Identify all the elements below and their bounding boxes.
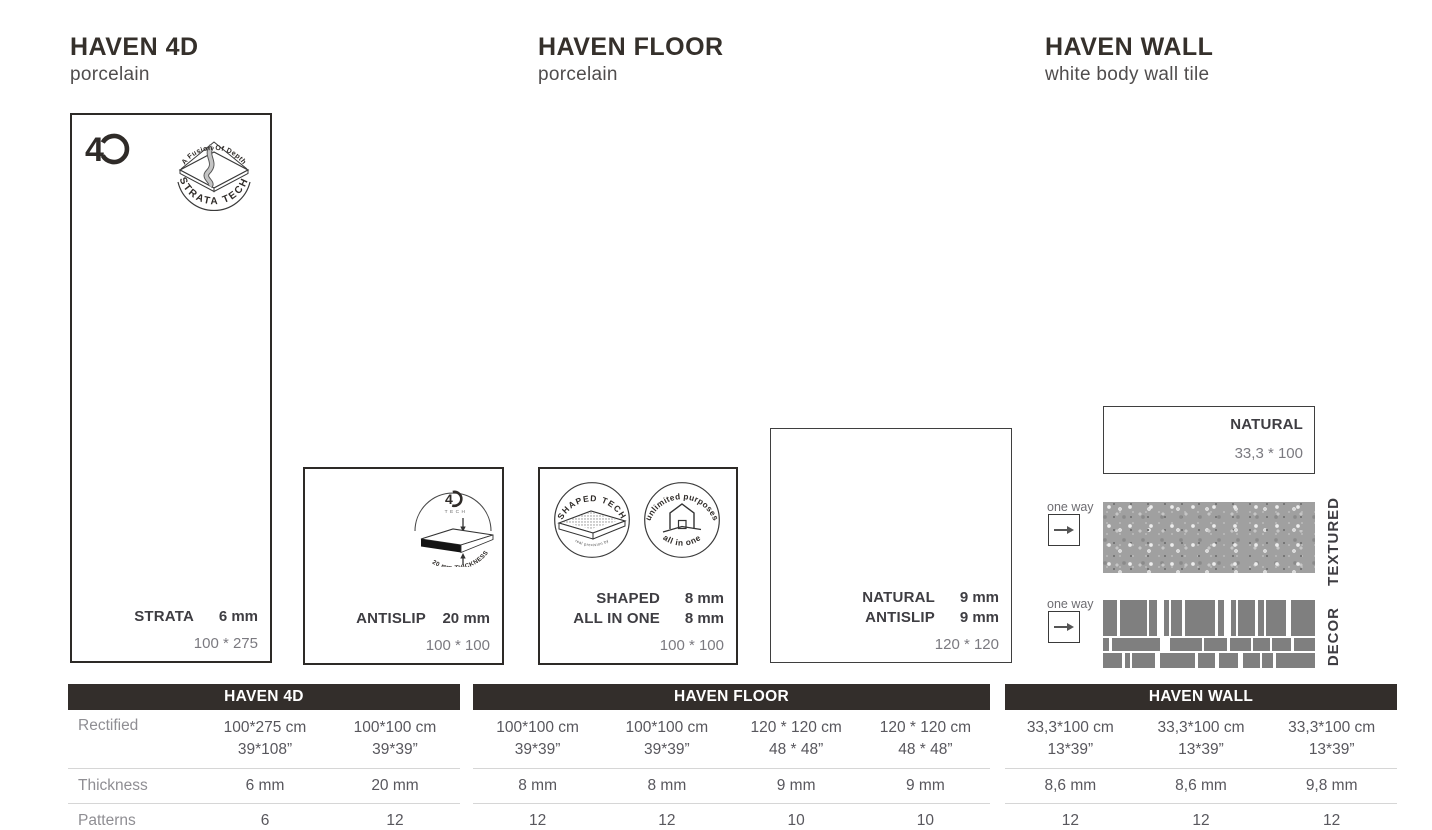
svg-text:4: 4 bbox=[445, 491, 453, 507]
thickness-value: 8 mm bbox=[672, 590, 724, 607]
thickness-value: 20 mm bbox=[438, 610, 490, 627]
finish-label: NATURAL bbox=[1230, 416, 1303, 433]
table-row-thickness: 8 mm8 mm9 mm9 mm bbox=[473, 769, 990, 804]
tile-size: 100 * 100 bbox=[573, 637, 724, 654]
table-cell: 8 mm bbox=[602, 769, 731, 803]
table-cell: 12 bbox=[330, 804, 460, 830]
table-cell: 33,3*100 cm13*39” bbox=[1136, 717, 1267, 768]
svg-text:unlimited purposes: unlimited purposes bbox=[643, 491, 721, 522]
naturalwall-spec: NATURAL 33,3 * 100 bbox=[1230, 416, 1303, 462]
right-arrow-icon bbox=[1054, 622, 1074, 632]
finish-label: STRATA bbox=[134, 608, 194, 625]
haven-4d-subtitle: porcelain bbox=[70, 64, 150, 86]
row-label: Patterns bbox=[68, 804, 200, 830]
decor-band bbox=[1103, 653, 1315, 668]
shaped-spec: SHAPED 8 mm ALL IN ONE 8 mm 100 * 100 bbox=[573, 587, 724, 654]
table-cell: 10 bbox=[732, 804, 861, 830]
table-row-rectified: 100*100 cm39*39”100*100 cm39*39”120 * 12… bbox=[473, 710, 990, 769]
table-row-patterns: 12121010 bbox=[473, 804, 990, 830]
table-row-rectified: 33,3*100 cm13*39”33,3*100 cm13*39”33,3*1… bbox=[1005, 710, 1397, 769]
finish-label: NATURAL bbox=[862, 589, 935, 606]
one-way-box bbox=[1048, 514, 1080, 546]
finish-label: ALL IN ONE bbox=[573, 610, 660, 627]
table-section-haven-4d: HAVEN 4D Rectified100*275 cm39*108”100*1… bbox=[68, 684, 460, 830]
all-in-one-badge-icon: unlimited purposes all in one bbox=[641, 479, 723, 561]
shaped-badge-bottom-text: real precision by bbox=[574, 538, 609, 547]
thickness-value: 8 mm bbox=[672, 610, 724, 627]
allinone-badge-bottom-text: all in one bbox=[661, 532, 702, 548]
table-cell: 12 bbox=[602, 804, 731, 830]
table-header: HAVEN WALL bbox=[1005, 684, 1397, 710]
table-row-thickness: Thickness6 mm20 mm bbox=[68, 769, 460, 804]
table-cell: 9,8 mm bbox=[1266, 769, 1397, 803]
tile-box-natural-wall: NATURAL 33,3 * 100 bbox=[1103, 406, 1315, 474]
decor-vertical-label: DECOR bbox=[1325, 607, 1342, 666]
table-cell: 120 * 120 cm48 * 48” bbox=[861, 717, 990, 768]
table-cell: 33,3*100 cm13*39” bbox=[1005, 717, 1136, 768]
table-cell: 12 bbox=[1266, 804, 1397, 830]
table-cell: 8,6 mm bbox=[1005, 769, 1136, 803]
tile-size: 33,3 * 100 bbox=[1230, 445, 1303, 462]
svg-text:4: 4 bbox=[85, 131, 104, 169]
table-cell: 12 bbox=[1005, 804, 1136, 830]
thickness-value: 9 mm bbox=[947, 589, 999, 606]
table-cell: 12 bbox=[1136, 804, 1267, 830]
decor-band bbox=[1103, 638, 1315, 651]
decor-tile-swatch bbox=[1103, 600, 1315, 668]
table-body: Rectified100*275 cm39*108”100*100 cm39*3… bbox=[68, 710, 460, 830]
table-cell: 9 mm bbox=[732, 769, 861, 803]
decor-band bbox=[1103, 600, 1315, 636]
allinone-badge-top-text: unlimited purposes bbox=[643, 491, 721, 522]
one-way-box bbox=[1048, 611, 1080, 643]
tile-size: 120 * 120 bbox=[862, 636, 999, 653]
svg-text:real precision by: real precision by bbox=[574, 538, 609, 547]
finish-label: ANTISLIP bbox=[356, 610, 426, 627]
table-section-haven-wall: HAVEN WALL 33,3*100 cm13*39”33,3*100 cm1… bbox=[1005, 684, 1397, 830]
table-row-patterns: Patterns612 bbox=[68, 804, 460, 830]
table-row-thickness: 8,6 mm8,6 mm9,8 mm bbox=[1005, 769, 1397, 804]
haven-wall-title: HAVEN WALL bbox=[1045, 33, 1213, 62]
table-cell: 12 bbox=[473, 804, 602, 830]
spec-sheet-page: HAVEN 4D porcelain HAVEN FLOOR porcelain… bbox=[0, 0, 1432, 830]
4d-logo-icon: 4 bbox=[85, 130, 133, 170]
table-header: HAVEN 4D bbox=[68, 684, 460, 710]
table-header: HAVEN FLOOR bbox=[473, 684, 990, 710]
table-cell: 100*100 cm39*39” bbox=[602, 717, 731, 768]
table-cell: 100*100 cm39*39” bbox=[473, 717, 602, 768]
tile-box-natural-120: NATURAL 9 mm ANTISLIP 9 mm 120 * 120 bbox=[770, 428, 1012, 663]
table-cell: 6 mm bbox=[200, 769, 330, 803]
svg-text:all in one: all in one bbox=[661, 532, 702, 548]
table-cell: 20 mm bbox=[330, 769, 460, 803]
table-cell: 100*275 cm39*108” bbox=[200, 717, 330, 768]
one-way-label: one way bbox=[1047, 500, 1094, 514]
haven-wall-subtitle: white body wall tile bbox=[1045, 64, 1209, 86]
svg-text:TECH: TECH bbox=[445, 509, 468, 515]
table-cell: 120 * 120 cm48 * 48” bbox=[732, 717, 861, 768]
table-section-haven-floor: HAVEN FLOOR 100*100 cm39*39”100*100 cm39… bbox=[473, 684, 990, 830]
strata-spec: STRATA 6 mm 100 * 275 bbox=[134, 605, 258, 652]
table-row-rectified: Rectified100*275 cm39*108”100*100 cm39*3… bbox=[68, 710, 460, 769]
table-cell: 6 bbox=[200, 804, 330, 830]
tile-size: 100 * 275 bbox=[134, 635, 258, 652]
table-row-patterns: 121212 bbox=[1005, 804, 1397, 830]
haven-4d-title: HAVEN 4D bbox=[70, 33, 199, 62]
4d-tech-thickness-icon: 4 TECH 20 mm THICKNESS bbox=[407, 481, 499, 567]
table-cell: 10 bbox=[861, 804, 990, 830]
one-way-label: one way bbox=[1047, 597, 1094, 611]
tile-box-shaped: SHAPED TECH real precision by unlimited … bbox=[538, 467, 738, 665]
table-body: 100*100 cm39*39”100*100 cm39*39”120 * 12… bbox=[473, 710, 990, 830]
row-label: Rectified bbox=[68, 717, 200, 768]
table-body: 33,3*100 cm13*39”33,3*100 cm13*39”33,3*1… bbox=[1005, 710, 1397, 830]
strata-tech-badge-icon: A Fusion Of Depth STRATA TECH bbox=[168, 126, 260, 218]
table-cell: 33,3*100 cm13*39” bbox=[1266, 717, 1397, 768]
textured-vertical-label: TEXTURED bbox=[1325, 497, 1342, 586]
table-cell: 100*100 cm39*39” bbox=[330, 717, 460, 768]
natural120-spec: NATURAL 9 mm ANTISLIP 9 mm 120 * 120 bbox=[862, 586, 999, 653]
tile-size: 100 * 100 bbox=[356, 637, 490, 654]
finish-label: SHAPED bbox=[596, 590, 660, 607]
haven-floor-subtitle: porcelain bbox=[538, 64, 618, 86]
table-cell: 8 mm bbox=[473, 769, 602, 803]
thickness-value: 9 mm bbox=[947, 609, 999, 626]
right-arrow-icon bbox=[1054, 525, 1074, 535]
haven-floor-title: HAVEN FLOOR bbox=[538, 33, 724, 62]
thickness-value: 6 mm bbox=[206, 608, 258, 625]
row-label: Thickness bbox=[68, 769, 200, 803]
table-cell: 9 mm bbox=[861, 769, 990, 803]
antislip20-spec: ANTISLIP 20 mm 100 * 100 bbox=[356, 607, 490, 654]
tile-box-strata: 4 A Fusion Of Depth STRATA TECH bbox=[70, 113, 272, 663]
tile-box-antislip-20: 4 TECH 20 mm THICKNESS ANTISLIP 20 mm 10… bbox=[303, 467, 504, 665]
finish-label: ANTISLIP bbox=[865, 609, 935, 626]
table-cell: 8,6 mm bbox=[1136, 769, 1267, 803]
shaped-tech-badge-icon: SHAPED TECH real precision by bbox=[551, 479, 633, 561]
textured-tile-swatch bbox=[1103, 502, 1315, 573]
